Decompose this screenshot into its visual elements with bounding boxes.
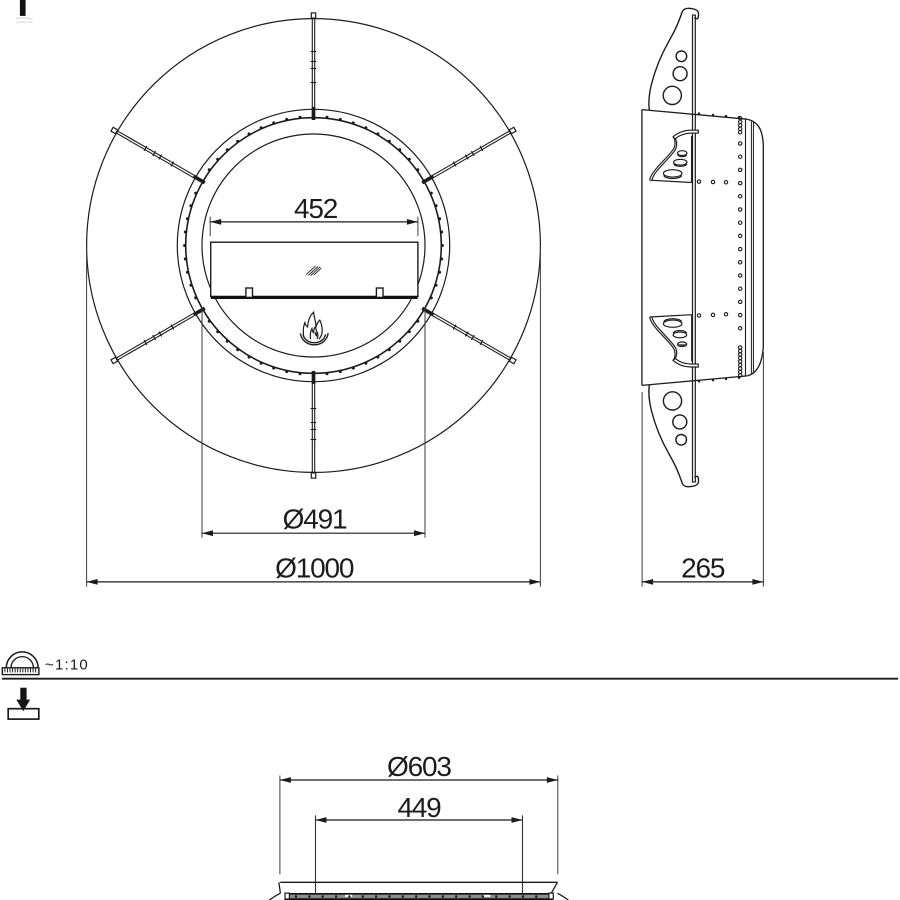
svg-text:~1:10: ~1:10 bbox=[45, 657, 89, 674]
svg-text:Ø1000: Ø1000 bbox=[275, 552, 354, 583]
svg-text:449: 449 bbox=[397, 792, 441, 823]
svg-text:Ø603: Ø603 bbox=[387, 751, 451, 782]
svg-text:Ø491: Ø491 bbox=[283, 504, 347, 535]
svg-text:265: 265 bbox=[681, 552, 725, 583]
svg-text:452: 452 bbox=[294, 193, 338, 224]
